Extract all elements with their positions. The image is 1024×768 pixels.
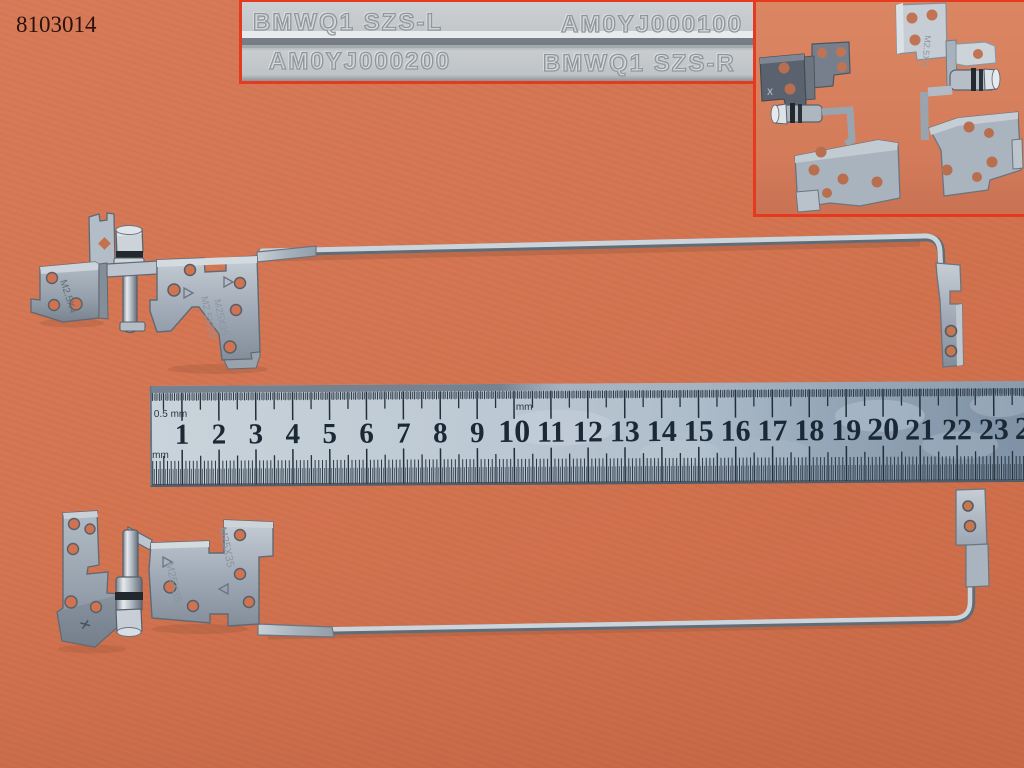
svg-text:AM0YJ000200: AM0YJ000200 [269, 48, 451, 75]
svg-text:6: 6 [359, 418, 374, 450]
svg-text:18: 18 [794, 414, 824, 447]
svg-text:2: 2 [212, 419, 227, 451]
svg-text:17: 17 [757, 414, 787, 447]
svg-text:BMWQ1 SZS-L: BMWQ1 SZS-L [253, 9, 443, 36]
svg-text:21: 21 [905, 413, 935, 446]
svg-text:1: 1 [175, 419, 190, 451]
svg-text:9: 9 [470, 417, 485, 449]
svg-text:5: 5 [322, 418, 337, 450]
svg-text:3: 3 [249, 418, 264, 450]
svg-text:16: 16 [720, 415, 750, 448]
svg-text:15: 15 [684, 415, 714, 448]
svg-text:8103014: 8103014 [16, 12, 97, 37]
svg-text:X: X [767, 87, 773, 97]
svg-text:11: 11 [537, 416, 566, 449]
svg-text:14: 14 [647, 415, 677, 448]
svg-text:BMWQ1 SZS-R: BMWQ1 SZS-R [543, 50, 736, 77]
svg-text:23: 23 [979, 413, 1009, 446]
svg-text:AM0YJ000100: AM0YJ000100 [561, 11, 743, 38]
svg-text:8: 8 [433, 417, 448, 449]
svg-text:4: 4 [285, 418, 300, 450]
svg-text:mm: mm [516, 402, 533, 413]
svg-text:24: 24 [1015, 410, 1024, 446]
svg-text:7: 7 [396, 417, 411, 449]
svg-text:0.5 mm: 0.5 mm [154, 409, 187, 420]
svg-text:mm: mm [152, 450, 169, 461]
svg-text:19: 19 [831, 414, 861, 447]
svg-text:12: 12 [573, 415, 603, 448]
svg-text:22: 22 [942, 413, 972, 446]
svg-text:13: 13 [610, 415, 640, 448]
